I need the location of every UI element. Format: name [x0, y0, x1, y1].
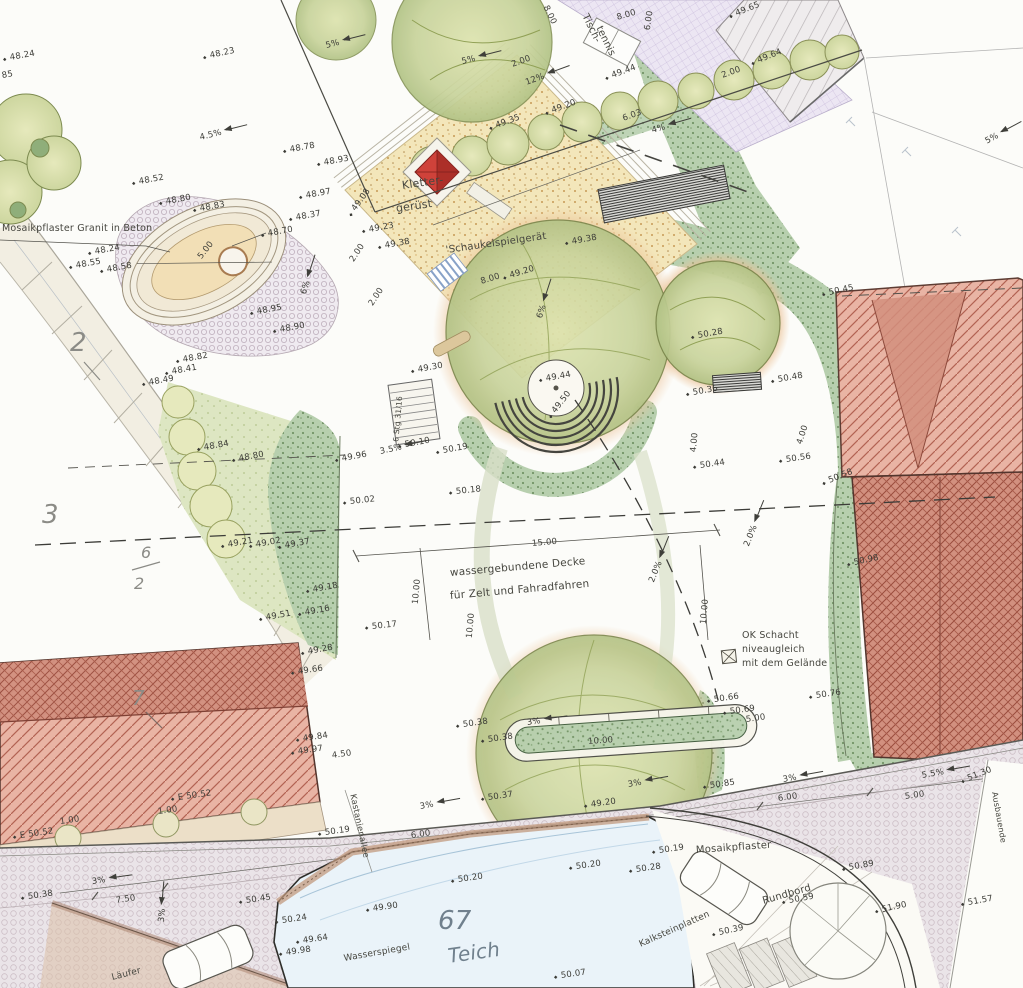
dimension-label-text: 5.00 — [904, 789, 925, 802]
elevation-label-text: 50.28 — [697, 327, 724, 341]
elevation-label-text: 50.45 — [828, 283, 855, 298]
elevation-label: 48.84 — [203, 440, 229, 453]
slope-label-text: 3% — [627, 778, 642, 790]
dimension-label-text: 6.00 — [777, 791, 798, 804]
text-label: niveaugleich — [742, 645, 805, 655]
dimension-label-text: 1.00 — [157, 804, 178, 817]
elevation-label: 50.48 — [777, 372, 803, 385]
elevation-label: 50.58 — [827, 468, 854, 485]
dimension-label: 6.00 — [777, 792, 798, 803]
elevation-label: 85 — [1, 70, 14, 80]
dimension-label-text: 2.00 — [367, 286, 386, 308]
elevation-label: 50.28 — [697, 328, 723, 341]
slope-arrow-icon — [545, 715, 567, 719]
parcel-label: 2 — [70, 330, 87, 356]
elevation-label: 48.97 — [305, 188, 331, 201]
slope-label: 2.0% — [743, 499, 769, 548]
elevation-label-text: 48.49 — [148, 374, 175, 388]
elevation-label-text: 50.39 — [718, 923, 745, 938]
text-label-text: Mosaikpflaster — [696, 840, 772, 856]
elevation-label-text: 50.37 — [487, 790, 513, 803]
elevation-label-text: 50.19 — [658, 843, 684, 856]
slope-label: 3% — [526, 713, 568, 727]
slope-label: 3% — [158, 881, 170, 922]
dimension-label: 1.00 — [59, 815, 80, 826]
elevation-label-text: 49.38 — [571, 233, 598, 247]
elevation-label-text: E 50.52 — [19, 826, 54, 841]
dimension-label-text: 6.00 — [410, 828, 431, 841]
slope-label-text: 6% — [299, 279, 313, 295]
text-label: gerüst — [395, 198, 433, 214]
elevation-label-text: 49.90 — [372, 901, 398, 914]
parcel-label-text: 2 — [70, 328, 87, 358]
elevation-label-text: 49.18 — [312, 581, 339, 595]
slope-label-text: 3% — [782, 773, 797, 785]
slope-arrow-icon — [660, 536, 669, 557]
text-label-text: 6 Stg 31/16 — [391, 396, 404, 442]
slope-arrow-icon — [161, 881, 164, 903]
elevation-label: 48.83 — [199, 201, 225, 214]
text-label: Mosaikpflaster — [696, 841, 772, 856]
elevation-label: 48.52 — [138, 174, 164, 187]
elevation-label-text: 50.17 — [371, 619, 397, 632]
elevation-label: 49.23 — [368, 222, 394, 235]
elevation-label-text: 50.18 — [455, 484, 481, 497]
elevation-label: 50.20 — [457, 873, 483, 885]
elevation-label: 51.90 — [881, 901, 908, 915]
slope-arrow-icon — [646, 776, 668, 781]
slope-label: 5.5% — [921, 763, 971, 780]
text-label-text: mit dem Gelände — [742, 658, 827, 669]
elevation-label-text: 50.20 — [457, 872, 483, 885]
elevation-label-text: 50.76 — [815, 688, 841, 701]
slope-label-text: 3% — [157, 908, 168, 923]
slope-label-text: 6% — [535, 303, 549, 319]
dimension-label: 6.03 — [622, 109, 643, 124]
dimension-label-text: 10.00 — [699, 599, 711, 625]
elevation-label: 49.98 — [285, 946, 311, 958]
elevation-label-text: 48.80 — [165, 193, 192, 207]
dimension-label: 8.00 — [480, 272, 501, 286]
elevation-label: E 50.52 — [19, 827, 54, 840]
elevation-label-text: 50.38 — [462, 717, 488, 730]
text-label: wassergebundene Decke — [450, 556, 586, 578]
elevation-label: 49.20 — [590, 798, 616, 810]
slope-label-text: 4.5% — [199, 128, 223, 143]
dimension-label-text: 10.00 — [465, 613, 477, 639]
slope-label: 6% — [536, 278, 557, 320]
elevation-label: E 50.52 — [177, 789, 212, 802]
elevation-label-text: 50.38 — [487, 732, 513, 745]
elevation-label: 48.24 — [94, 244, 120, 257]
elevation-label-text: 51.57 — [967, 894, 994, 908]
dimension-label-text: 1.00 — [59, 814, 80, 827]
parcel-label-text: 7 — [132, 686, 145, 710]
elevation-label: 49.97 — [297, 745, 323, 757]
slope-label: 3% — [627, 774, 669, 789]
elevation-label: 49.90 — [372, 902, 398, 914]
slope-arrow-icon — [308, 255, 316, 276]
text-label: Kalksteinplatten — [638, 910, 711, 949]
elevation-label-text: 50.98 — [853, 553, 880, 568]
slope-label-text: 3.5% — [379, 442, 403, 456]
dimension-label: 10.00 — [588, 736, 614, 746]
parcel-label-text: 6 — [141, 543, 151, 562]
elevation-label: 48.80 — [238, 451, 264, 464]
elevation-label: 50.45 — [245, 894, 271, 906]
elevation-label-text: 49.37 — [284, 537, 311, 551]
elevation-label: 49.37 — [284, 538, 310, 551]
text-label-text: Kalksteinplatten — [638, 909, 712, 949]
elevation-label: 51.57 — [967, 895, 993, 908]
elevation-label: 50.45 — [828, 284, 855, 298]
elevation-label: 49.30 — [417, 362, 443, 375]
elevation-label-text: 49.20 — [590, 797, 616, 810]
elevation-label-text: 50.85 — [709, 778, 735, 791]
elevation-label-text: 49.64 — [756, 47, 783, 66]
slope-label-text: 12% — [524, 72, 546, 88]
text-label-text: Mosaikpflaster Granit in Beton — [2, 223, 152, 234]
dimension-label-text: 6.00 — [643, 10, 656, 31]
dimension-label: 15.00 — [532, 538, 558, 549]
elevation-label: 48.70 — [267, 226, 293, 239]
elevation-label: 49.64 — [756, 48, 783, 65]
text-label: mit dem Gelände — [742, 659, 827, 669]
slope-label-text: 3% — [526, 716, 541, 728]
elevation-label-text: 50.66 — [713, 692, 739, 705]
elevation-label: 48.41 — [171, 364, 197, 377]
slope-label: 4.5% — [199, 122, 249, 142]
elevation-label: 48.95 — [256, 304, 282, 317]
elevation-label: 49.08 — [351, 187, 373, 212]
elevation-label: 48.55 — [75, 258, 101, 271]
dimension-label-text: 10.00 — [588, 735, 614, 747]
elevation-label: 50.56 — [785, 453, 811, 465]
dimension-label: 1.00 — [157, 805, 178, 816]
elevation-label-text: 49.50 — [550, 389, 573, 415]
elevation-label-text: 48.84 — [203, 439, 230, 453]
elevation-label-text: 50.02 — [349, 494, 375, 507]
elevation-label-text: 49.30 — [417, 361, 444, 375]
slope-label: 4% — [651, 116, 693, 135]
dimension-label-text: 5.00 — [745, 712, 766, 725]
dimension-label-text: 10.00 — [411, 579, 423, 605]
elevation-label-text: 49.28 — [307, 643, 334, 657]
dimension-label: 2.00 — [367, 287, 385, 308]
elevation-label-text: 49.20 — [508, 264, 535, 281]
elevation-label: 50.28 — [635, 863, 661, 875]
elevation-label: 50.02 — [350, 495, 376, 506]
dimension-label-text: 4.00 — [795, 424, 811, 446]
dimension-label: 5.00 — [197, 240, 216, 261]
elevation-label: 49.84 — [302, 732, 328, 744]
dimension-label-text: 5.00 — [196, 239, 216, 261]
text-label-text: niveaugleich — [742, 644, 805, 655]
slope-arrow-icon — [544, 279, 552, 300]
text-label: Kastanienallee — [348, 793, 370, 859]
elevation-label-text: 50.20 — [575, 859, 601, 872]
text-label: für Zelt und Fahradfahren — [450, 579, 590, 602]
elevation-label: 49.64 — [302, 934, 328, 946]
dimension-label-text: 7.50 — [115, 893, 136, 906]
slope-label-text: 2.0% — [742, 524, 760, 549]
elevation-label: 50.19 — [324, 826, 350, 838]
elevation-label: 48.58 — [106, 262, 132, 275]
elevation-label-text: 49.98 — [285, 945, 311, 958]
dimension-label-text: 8.00 — [541, 4, 559, 26]
elevation-label-text: 85 — [1, 69, 14, 81]
dimension-label-text: 2.00 — [348, 242, 367, 264]
elevation-label: 50.39 — [718, 924, 745, 938]
slope-label: 5% — [461, 48, 503, 66]
elevation-label: 49.65 — [734, 1, 761, 18]
dimension-label-text: 15.00 — [532, 537, 558, 549]
elevation-label: 50.98 — [853, 554, 880, 568]
site-plan: 48.2348.3748.24854.5%5%5%5%48.7848.9348.… — [0, 0, 1023, 988]
text-label: Wasserspiegel — [343, 943, 411, 964]
slope-arrow-icon — [755, 500, 764, 521]
elevation-label: 49.96 — [341, 451, 367, 464]
elevation-label-text: 50.24 — [281, 913, 307, 926]
text-label-text: Ausbauende — [990, 791, 1008, 844]
dimension-label: 2.00 — [511, 55, 532, 70]
water-label: Teich — [447, 939, 502, 966]
dimension-label-text: 8.00 — [479, 271, 501, 286]
elevation-label-text: 49.38 — [384, 237, 411, 251]
elevation-label-text: 49.23 — [368, 221, 395, 235]
dimension-label-text: 2.00 — [720, 65, 742, 81]
elevation-label: 49.16 — [304, 605, 330, 618]
elevation-label: 49.28 — [307, 644, 333, 657]
dimension-label: 2.00 — [721, 66, 742, 81]
parcel-label-text: 2 — [134, 574, 144, 593]
text-label-text: OK Schacht — [742, 630, 799, 641]
slope-label-text: 5.5% — [921, 767, 945, 781]
slope-arrow-icon — [110, 874, 132, 878]
elevation-label: 50.20 — [575, 860, 601, 872]
dimension-label: 10.00 — [700, 599, 711, 625]
elevation-label-text: 48.24 — [94, 243, 121, 257]
text-label-text: wassergebundene Decke — [449, 555, 585, 579]
slope-arrow-icon — [801, 771, 823, 776]
elevation-label: 50.38 — [27, 890, 53, 902]
text-label: 6 Stg 31/16 — [392, 396, 403, 442]
dimension-label: 10.00 — [412, 579, 423, 605]
slope-label: 3% — [419, 796, 461, 811]
dimension-label: 8.00 — [616, 9, 637, 23]
slope-label: 6% — [300, 254, 321, 296]
text-label-text: Wasserspiegel — [343, 942, 411, 964]
elevation-label-text: 49.44 — [545, 370, 572, 384]
text-label-text: Kletter- — [401, 173, 444, 192]
elevation-label: 48.93 — [323, 155, 349, 168]
elevation-label-text: 48.58 — [106, 261, 133, 275]
slope-arrow-icon — [344, 34, 366, 40]
elevation-label: 48.37 — [295, 210, 321, 223]
elevation-label-text: 48.24 — [9, 49, 36, 63]
elevation-label: 50.89 — [848, 860, 874, 873]
elevation-label-text: 50.45 — [245, 893, 271, 906]
text-label: Läufer — [111, 967, 142, 983]
slope-arrow-icon — [226, 124, 248, 130]
elevation-label: 49.35 — [495, 114, 522, 131]
water-label: 67 — [438, 908, 471, 934]
text-label: 'Schaukelspielgerät — [445, 232, 547, 256]
elevation-label: 50.19 — [442, 443, 468, 456]
dimension-label-text: 4.00 — [689, 432, 701, 453]
slope-label: 3% — [91, 872, 133, 886]
elevation-label-text: 50.36 — [692, 384, 719, 398]
elevation-label-text: 49.08 — [350, 187, 373, 213]
elevation-label-text: 48.23 — [209, 46, 236, 61]
elevation-label-text: 50.89 — [848, 859, 875, 873]
water-label-text: 67 — [438, 906, 471, 936]
text-label-text: Kastanienallee — [347, 793, 370, 859]
elevation-label-text: 48.78 — [289, 141, 316, 155]
slope-label-text: 5% — [325, 38, 341, 51]
slope-arrow-icon — [438, 798, 460, 803]
dimension-label: 10.00 — [466, 613, 477, 639]
elevation-label-text: 49.16 — [304, 604, 331, 618]
elevation-label: 48.90 — [279, 322, 305, 335]
elevation-label-text: 50.38 — [27, 889, 53, 902]
parcel-label: 6 — [141, 545, 151, 561]
elevation-label-text: 49.20 — [550, 98, 577, 116]
text-label: OK Schacht — [742, 631, 799, 641]
elevation-label: 49.18 — [312, 582, 338, 595]
slope-label-text: 5% — [984, 131, 1001, 146]
elevation-label-text: 51.90 — [881, 900, 908, 915]
slope-arrow-icon — [480, 50, 502, 56]
slope-label: 12% — [525, 63, 572, 87]
slope-label-text: 3% — [419, 800, 434, 812]
dimension-label-text: 4.50 — [331, 748, 352, 761]
elevation-label-text: 50.19 — [442, 442, 469, 456]
elevation-label-text: 50.44 — [699, 458, 725, 471]
elevation-label-text: 48.83 — [199, 200, 226, 214]
dimension-label: 6.00 — [410, 829, 431, 840]
elevation-label-text: 50.07 — [560, 968, 586, 981]
elevation-label-text: 49.96 — [341, 450, 368, 464]
dimension-label-text: 8.00 — [616, 8, 638, 23]
elevation-label: 50.38 — [487, 733, 513, 745]
text-label-text: 'Schaukelspielgerät — [445, 231, 547, 256]
plan-labels: 48.2348.3748.24854.5%5%5%5%48.7848.9348.… — [0, 0, 1023, 988]
dimension-label: 4.00 — [796, 424, 810, 445]
elevation-label: 50.24 — [281, 914, 307, 926]
parcel-label: 7 — [132, 688, 145, 708]
elevation-label: 49.66 — [297, 665, 323, 677]
elevation-label: 48.49 — [148, 375, 174, 388]
elevation-label-text: 50.48 — [777, 371, 804, 385]
elevation-label: 48.78 — [289, 142, 315, 155]
dimension-label: 7.50 — [115, 894, 136, 905]
slope-arrow-icon — [1002, 121, 1022, 132]
elevation-label-text: 50.58 — [827, 467, 854, 486]
elevation-label-text: 50.19 — [324, 825, 350, 838]
elevation-label-text: 48.97 — [305, 187, 332, 201]
dimension-label-text: 2.00 — [510, 54, 532, 70]
text-label-text: Läufer — [111, 966, 142, 983]
slope-label: 5% — [984, 119, 1023, 146]
elevation-label-text: 49.35 — [494, 113, 521, 131]
slope-arrow-icon — [949, 765, 971, 770]
elevation-label: 48.80 — [165, 194, 191, 207]
slope-label-text: 4% — [651, 122, 667, 135]
elevation-label-text: 48.37 — [295, 209, 322, 223]
slope-label-text: 2.0% — [647, 560, 665, 585]
dimension-label: 8.00 — [541, 4, 557, 25]
water-label-text: Teich — [446, 937, 501, 968]
elevation-label-text: 49.51 — [265, 609, 292, 623]
elevation-label: 49.20 — [509, 265, 536, 281]
parcel-label: 3 — [42, 502, 59, 528]
slope-arrow-icon — [406, 440, 428, 446]
elevation-label-text: 48.55 — [75, 257, 102, 271]
elevation-label-text: 48.93 — [323, 154, 350, 168]
elevation-label: 49.38 — [571, 234, 597, 247]
text-label-text: gerüst — [395, 197, 433, 215]
elevation-label: 50.66 — [713, 693, 739, 705]
elevation-label: 50.59 — [788, 893, 814, 906]
slope-arrow-icon — [670, 118, 691, 125]
dimension-label: 6.00 — [644, 10, 655, 31]
elevation-label-text: 49.84 — [302, 731, 328, 744]
elevation-label-text: 49.97 — [297, 744, 323, 757]
elevation-label: 50.07 — [560, 969, 586, 981]
text-label: Kletter- — [401, 174, 444, 191]
elevation-label-text: 49.66 — [297, 664, 323, 677]
elevation-label-text: E 50.52 — [177, 788, 212, 803]
text-label: Ausbauende — [990, 791, 1007, 843]
slope-label: 3.5% — [379, 438, 429, 457]
dimension-label: 4.00 — [690, 432, 700, 452]
dimension-label: 5.00 — [745, 713, 766, 724]
elevation-label-text: 48.90 — [279, 321, 306, 335]
elevation-label: 50.37 — [487, 791, 513, 803]
parcel-label-text: 3 — [42, 500, 59, 530]
elevation-label: 48.24 — [9, 50, 35, 63]
slope-label: 2.0% — [648, 535, 674, 584]
elevation-label: 49.44 — [545, 371, 571, 384]
dimension-label-text: 6.03 — [621, 108, 643, 124]
elevation-label: 50.17 — [372, 620, 398, 631]
elevation-label-text: 48.41 — [171, 363, 198, 377]
slope-label-text: 3% — [91, 875, 106, 887]
elevation-label: 49.51 — [265, 610, 291, 623]
elevation-label: 50.76 — [815, 689, 841, 701]
elevation-label: 50.19 — [658, 844, 684, 856]
elevation-label: 50.85 — [709, 779, 735, 791]
dimension-label: 5.00 — [904, 790, 925, 801]
elevation-label: 49.38 — [384, 238, 410, 251]
elevation-label: 49.50 — [551, 390, 573, 415]
parcel-label: 2 — [134, 576, 144, 592]
elevation-label-text: 50.28 — [635, 862, 661, 875]
elevation-label: 48.23 — [209, 47, 236, 61]
slope-arrow-icon — [548, 65, 569, 73]
elevation-label-text: 49.44 — [610, 63, 637, 81]
slope-label: 5% — [325, 32, 367, 50]
elevation-label: 50.38 — [462, 718, 488, 730]
slope-label-text: 5% — [461, 54, 477, 67]
elevation-label: 49.20 — [551, 99, 578, 116]
dimension-label: 4.50 — [331, 749, 352, 760]
slope-label: 3% — [782, 769, 824, 784]
elevation-label-text: 48.80 — [238, 450, 265, 464]
text-label-text: für Zelt und Fahradfahren — [449, 578, 589, 602]
elevation-label: 50.36 — [692, 385, 718, 398]
